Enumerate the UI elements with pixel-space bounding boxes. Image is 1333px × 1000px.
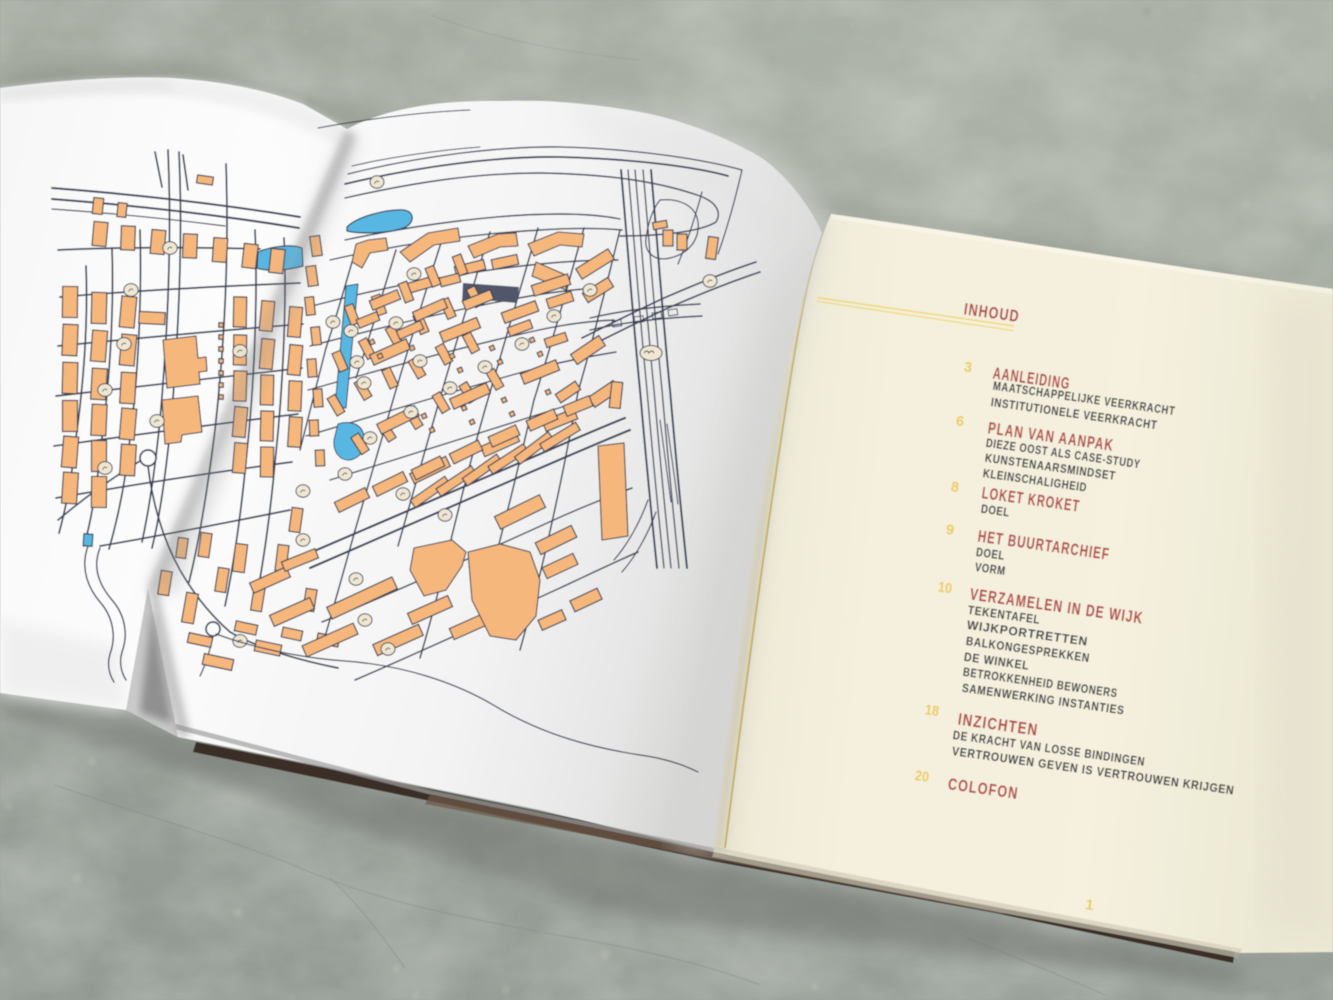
svg-text:10: 10 xyxy=(937,578,953,597)
svg-text:20: 20 xyxy=(914,767,930,786)
svg-text:18: 18 xyxy=(924,701,940,720)
